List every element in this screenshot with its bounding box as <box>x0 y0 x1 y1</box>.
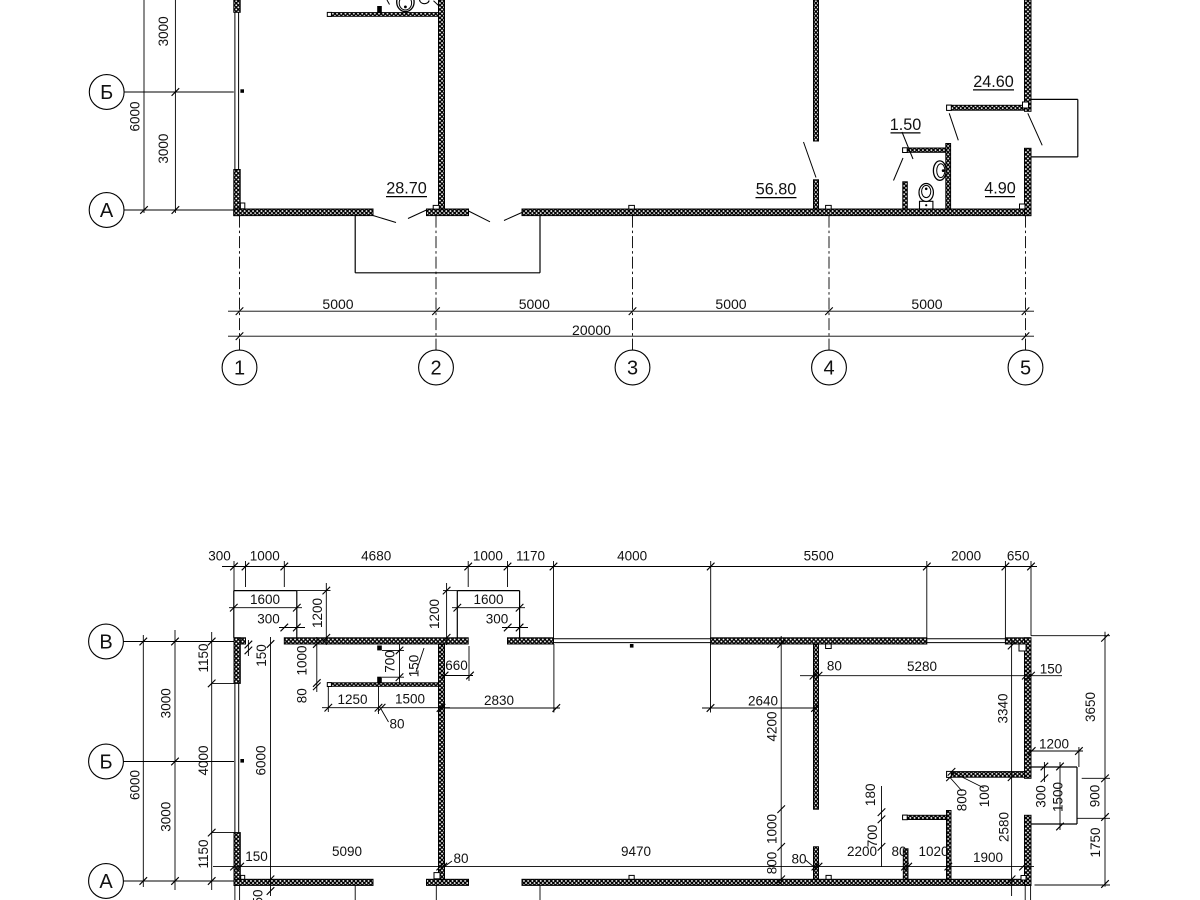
svg-text:900: 900 <box>1088 785 1103 808</box>
svg-text:3000: 3000 <box>156 134 171 164</box>
svg-text:1150: 1150 <box>196 839 211 868</box>
svg-text:80: 80 <box>827 659 842 674</box>
svg-text:1200: 1200 <box>1039 737 1069 752</box>
svg-text:4: 4 <box>823 358 834 380</box>
svg-text:1200: 1200 <box>427 599 442 629</box>
svg-text:Б: Б <box>99 752 112 774</box>
svg-text:3: 3 <box>627 358 638 380</box>
svg-text:2830: 2830 <box>484 693 514 708</box>
svg-text:1000: 1000 <box>295 645 310 675</box>
svg-text:1000: 1000 <box>473 549 503 564</box>
svg-text:1150: 1150 <box>251 889 266 900</box>
svg-text:80: 80 <box>791 852 806 867</box>
svg-text:Б: Б <box>100 82 113 104</box>
svg-text:300: 300 <box>208 549 231 564</box>
svg-text:150: 150 <box>254 644 269 667</box>
svg-text:800: 800 <box>955 789 970 812</box>
svg-text:1750: 1750 <box>1088 827 1103 857</box>
svg-text:9470: 9470 <box>621 844 651 859</box>
svg-text:3340: 3340 <box>995 693 1010 723</box>
svg-text:1600: 1600 <box>250 592 280 607</box>
svg-text:300: 300 <box>257 612 280 627</box>
svg-text:А: А <box>100 200 114 222</box>
svg-text:2580: 2580 <box>996 812 1011 842</box>
svg-text:5500: 5500 <box>804 549 834 564</box>
svg-text:4000: 4000 <box>617 549 647 564</box>
svg-text:24.60: 24.60 <box>973 73 1014 91</box>
svg-text:5: 5 <box>1020 358 1031 380</box>
svg-text:1150: 1150 <box>196 643 211 672</box>
svg-text:6000: 6000 <box>128 770 143 800</box>
svg-text:180: 180 <box>863 784 878 807</box>
svg-text:2000: 2000 <box>951 549 981 564</box>
svg-text:4680: 4680 <box>361 549 391 564</box>
svg-text:6000: 6000 <box>128 101 143 131</box>
svg-text:650: 650 <box>1007 549 1030 564</box>
svg-text:1200: 1200 <box>310 598 325 628</box>
svg-text:1900: 1900 <box>973 850 1003 865</box>
svg-text:80: 80 <box>891 844 906 859</box>
svg-text:5000: 5000 <box>715 296 746 312</box>
svg-text:20000: 20000 <box>572 322 611 338</box>
svg-text:3000: 3000 <box>159 802 174 832</box>
svg-text:700: 700 <box>383 650 398 673</box>
svg-text:1.50: 1.50 <box>890 116 922 134</box>
svg-text:150: 150 <box>407 655 422 678</box>
svg-text:5280: 5280 <box>907 659 937 674</box>
svg-text:56.80: 56.80 <box>756 181 797 199</box>
svg-text:2200: 2200 <box>847 844 877 859</box>
svg-text:3650: 3650 <box>1083 692 1098 722</box>
svg-text:1020: 1020 <box>918 844 948 859</box>
svg-text:5090: 5090 <box>332 844 362 859</box>
svg-text:1600: 1600 <box>473 592 503 607</box>
svg-text:5000: 5000 <box>519 296 550 312</box>
svg-text:28.70: 28.70 <box>386 180 427 198</box>
svg-text:4000: 4000 <box>196 745 211 775</box>
svg-text:5000: 5000 <box>322 296 353 312</box>
svg-text:80: 80 <box>295 688 310 703</box>
svg-text:6000: 6000 <box>254 745 269 775</box>
svg-text:2: 2 <box>430 358 441 380</box>
svg-text:80: 80 <box>389 717 404 732</box>
svg-text:150: 150 <box>245 849 268 864</box>
svg-text:1000: 1000 <box>765 814 780 844</box>
svg-text:1500: 1500 <box>395 692 425 707</box>
svg-text:100: 100 <box>977 785 992 808</box>
svg-text:80: 80 <box>453 851 468 866</box>
svg-text:А: А <box>99 871 113 893</box>
svg-text:3000: 3000 <box>156 16 171 46</box>
svg-text:1000: 1000 <box>250 549 280 564</box>
svg-text:В: В <box>99 632 112 654</box>
svg-text:3000: 3000 <box>159 688 174 718</box>
svg-text:2640: 2640 <box>748 694 778 709</box>
svg-text:1: 1 <box>234 358 245 380</box>
svg-text:4.90: 4.90 <box>984 180 1016 198</box>
svg-text:150: 150 <box>1040 662 1063 677</box>
svg-text:5000: 5000 <box>911 296 942 312</box>
svg-text:300: 300 <box>486 611 509 626</box>
svg-text:1250: 1250 <box>337 692 367 707</box>
svg-text:800: 800 <box>765 852 780 875</box>
svg-text:300: 300 <box>1034 785 1049 808</box>
svg-text:660: 660 <box>445 658 468 673</box>
svg-text:1500: 1500 <box>1051 782 1066 812</box>
svg-text:1170: 1170 <box>516 549 545 564</box>
svg-text:4200: 4200 <box>765 711 780 741</box>
